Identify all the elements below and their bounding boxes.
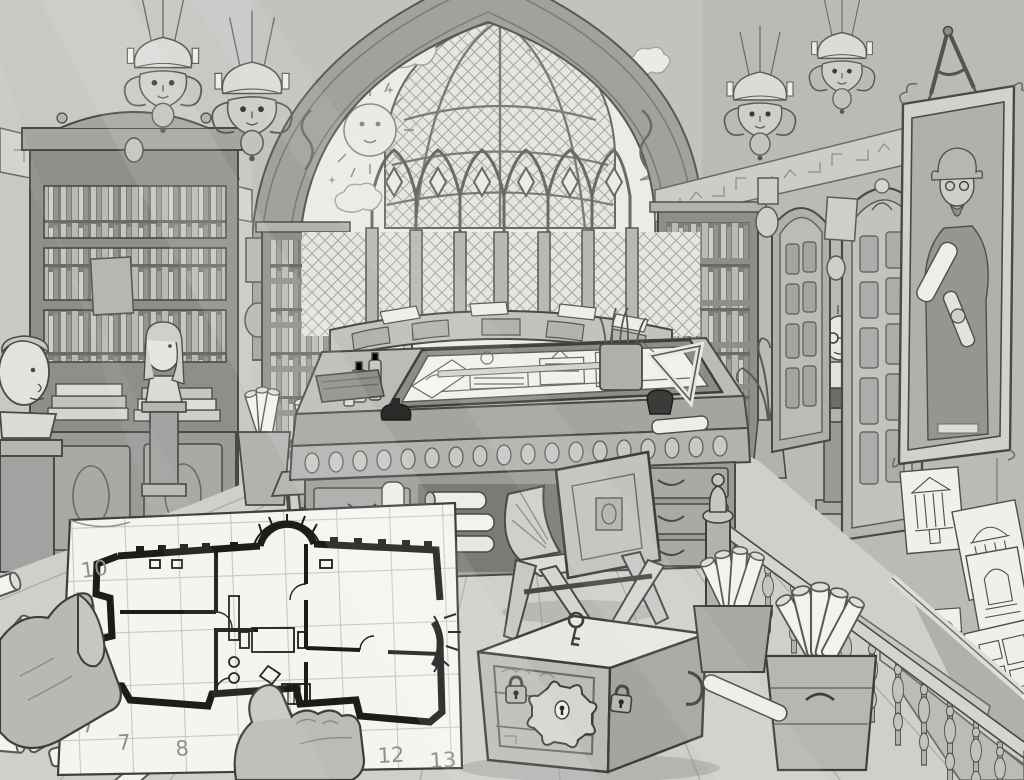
ink-bottle-dark: [647, 390, 673, 414]
illustration-canvas: 10 9 7 7 8 12 13: [0, 0, 1024, 780]
architect-portrait-painting: [893, 83, 1024, 467]
book-shelf-row: [44, 310, 226, 362]
gothic-door-small: [772, 208, 830, 452]
study-illustration: 10 9 7 7 8 12 13: [0, 0, 1024, 780]
plan-number: 10: [79, 555, 109, 582]
plan-number: 12: [377, 743, 405, 768]
plan-number: 7: [117, 730, 132, 755]
plan-number: 8: [175, 736, 190, 761]
portrait-nameplate: [938, 424, 978, 433]
